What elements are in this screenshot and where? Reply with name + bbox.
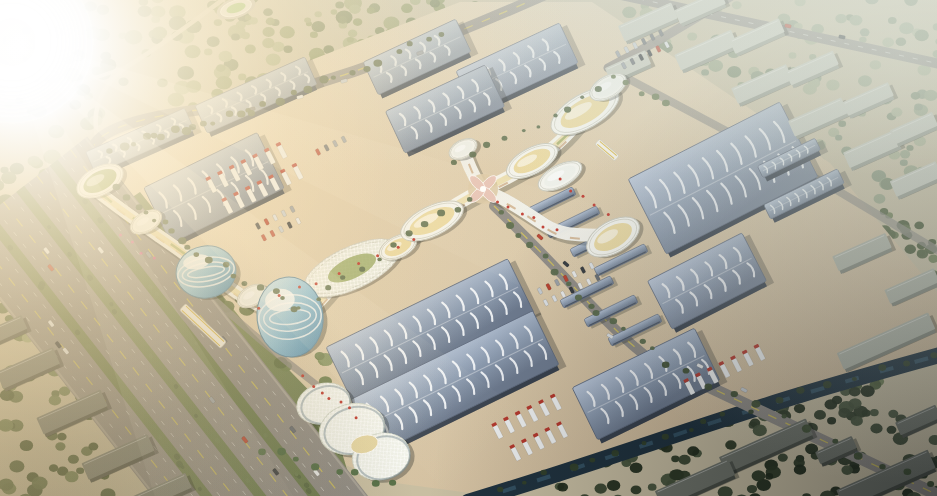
layer-fx (0, 0, 937, 496)
aerial-masterplan-render (0, 0, 937, 496)
sun-glare (0, 0, 937, 496)
render-canvas (0, 0, 937, 496)
